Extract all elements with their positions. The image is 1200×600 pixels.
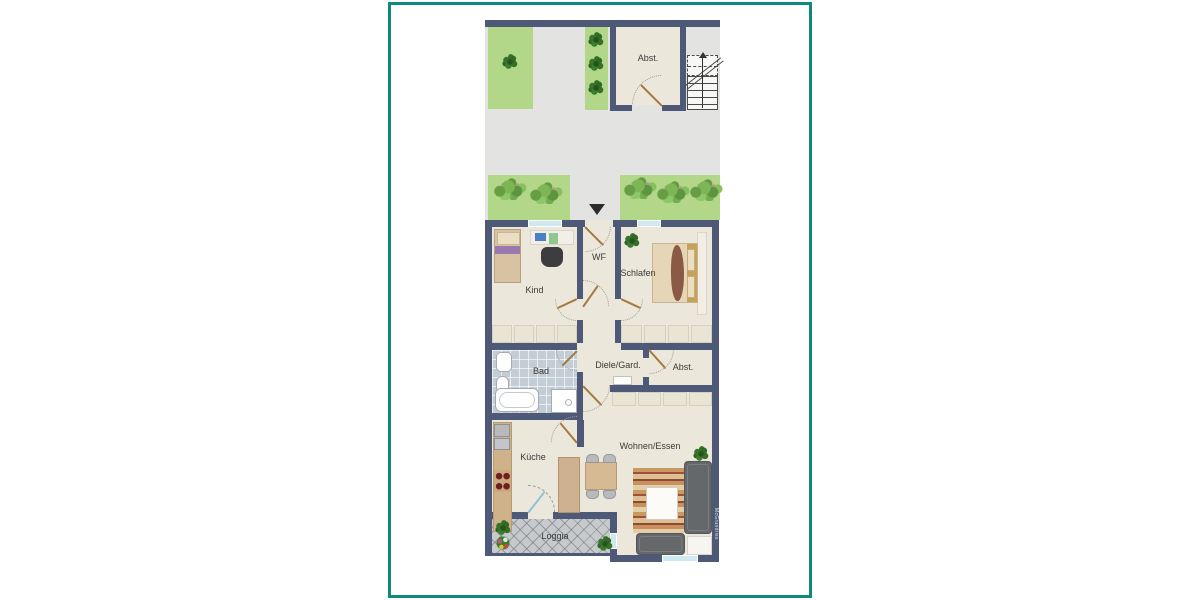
room-label-wohnen: Wohnen/Essen [610,441,690,451]
blanket [495,246,520,254]
kitchen-sink-drainer [494,438,510,450]
blanket [671,244,684,301]
office-chair [541,247,563,267]
dining-table [585,462,617,490]
floor-plan: Abst. [485,20,722,562]
plant-icon [588,80,604,96]
stair-walk-line [702,57,703,108]
dining-chair [586,490,599,499]
plant-icon [502,54,518,70]
plant-icon [588,32,604,48]
staircase [687,55,718,110]
wardrobe-schlafen [621,325,712,343]
wall-mid-right [621,343,712,350]
room-label-bad: Bad [525,366,557,376]
room-label-kind: Kind [492,285,577,295]
coffee-table [646,487,678,520]
window-wohnen [662,555,698,562]
bathtub-inner [499,392,535,408]
room-label-loggia: Loggia [525,531,585,541]
window-schlafen [637,220,661,227]
sideboard-row [612,392,712,406]
watermark: McGrundriss [713,508,719,556]
bush-icon [689,179,723,201]
wall-abst-left-bottom [643,377,649,385]
plant-icon [693,446,709,462]
sofa-bottom [636,533,685,555]
desk [530,230,574,245]
entrance-arrow-icon [589,204,605,215]
bed-single [494,229,521,283]
pillow [687,249,695,271]
entrance-door-opening [585,220,613,227]
wall [610,27,616,111]
bush-icon [493,178,527,200]
shower-drain [565,399,572,406]
plant-icon [597,536,613,552]
window-kind [528,220,562,227]
plant-icon [495,520,511,536]
wall [610,105,632,111]
wall-bad-right [577,372,583,413]
plant-icon [588,56,604,72]
room-label-wf: WF [583,252,615,262]
wardrobe-kind [492,325,577,343]
laptop [535,233,546,241]
dining-chair [603,490,616,499]
side-table [687,536,712,555]
bush-icon [623,177,657,199]
room-label-schlafen: Schlafen [608,268,668,278]
plant-icon [624,233,640,249]
wall [662,105,686,111]
flower-pot-icon [495,535,511,551]
wall-kueche-right [577,420,584,447]
sink [496,352,512,372]
desk-pad [549,233,558,244]
room-label-storage-top: Abst. [616,53,680,63]
wardrobe-strip [697,232,707,315]
dining-chair [586,454,599,463]
pillow [497,232,520,245]
wall-mid-left [492,343,577,350]
room-label-kueche: Küche [511,452,555,462]
pillow [687,276,695,298]
wall-wf-right [615,227,621,299]
dining-chair [603,454,616,463]
kitchen-island [558,457,580,513]
wall-wf-left-stub [577,320,583,343]
kitchen-sink [494,424,510,437]
bush-icon [656,181,690,203]
hall-cabinet [613,376,632,385]
loggia-railing [485,553,610,556]
wall [680,27,686,111]
bush-icon [529,182,563,204]
wall-wf-left [577,227,583,299]
top-boundary-wall [485,20,720,27]
bathtub [495,388,539,412]
wall-diele-bottom [610,385,712,392]
shower [551,389,577,413]
wall-loggia-top-right [553,512,610,519]
stove [494,470,511,492]
room-label-diele: Diele/Gard. [588,360,648,370]
apartment-wall-left [485,220,492,556]
sofa-right [684,461,712,534]
stair-direction-arrow-icon [699,52,707,58]
